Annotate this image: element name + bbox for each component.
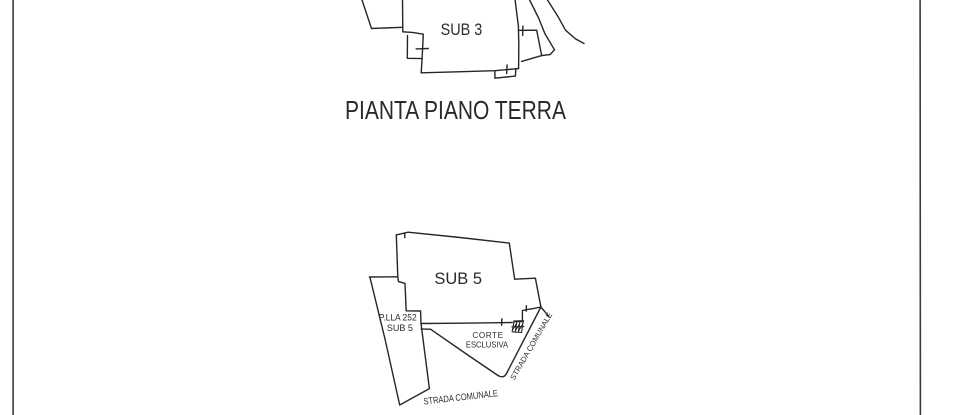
svg-text:CORTE: CORTE	[472, 331, 503, 340]
svg-text:P.LLA 252: P.LLA 252	[379, 312, 417, 323]
svg-text:ESCLUSIVA: ESCLUSIVA	[466, 340, 509, 349]
svg-text:SUB 5: SUB 5	[434, 269, 482, 288]
svg-text:PIANTA PIANO TERRA: PIANTA PIANO TERRA	[345, 97, 566, 126]
svg-text:SUB 5: SUB 5	[387, 323, 413, 333]
svg-text:SUB 3: SUB 3	[441, 21, 483, 39]
svg-text:STRADA COMUNALE: STRADA COMUNALE	[423, 387, 499, 406]
